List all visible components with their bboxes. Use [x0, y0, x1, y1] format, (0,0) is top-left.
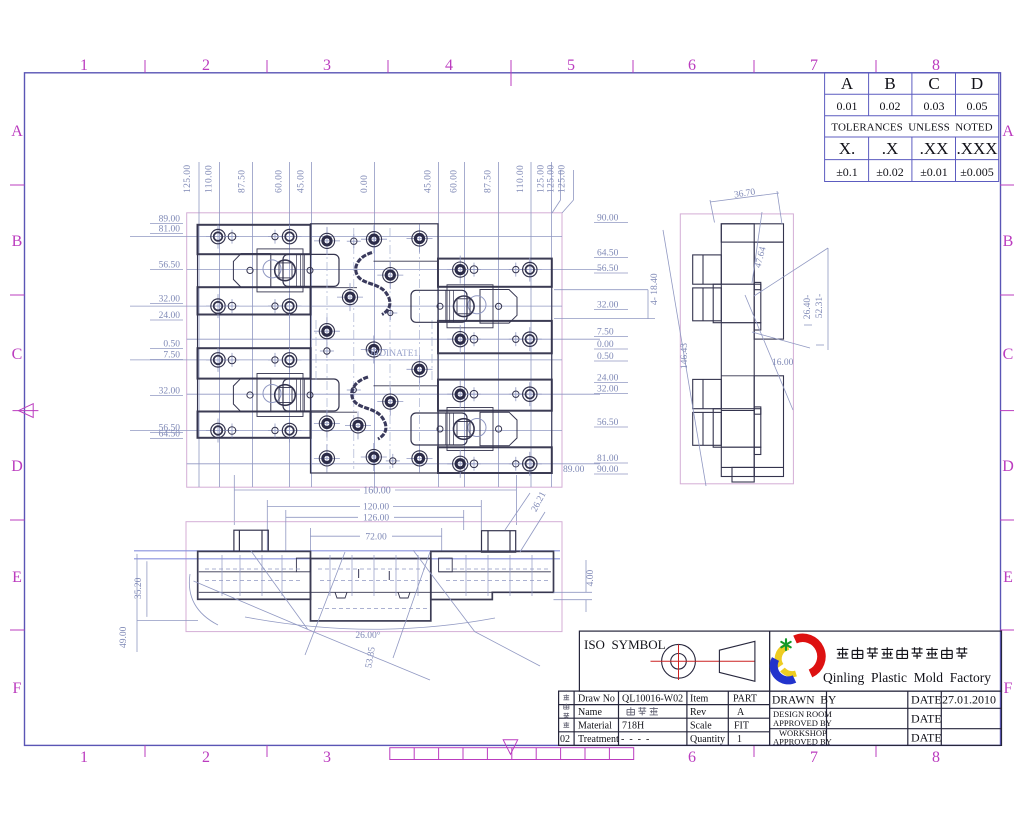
svg-text:DRAWN BY: DRAWN BY	[772, 695, 837, 707]
svg-text:X.: X.	[839, 139, 856, 158]
svg-text:90.00: 90.00	[597, 465, 619, 475]
svg-text:718H: 718H	[622, 721, 644, 732]
svg-text:4: 4	[445, 57, 453, 74]
svg-text:81.00: 81.00	[159, 225, 181, 235]
svg-text:27.01.2010: 27.01.2010	[942, 693, 996, 707]
svg-text:6: 6	[688, 749, 696, 766]
svg-text:6: 6	[688, 57, 696, 74]
svg-text:89.00: 89.00	[159, 215, 181, 225]
svg-text:7: 7	[810, 57, 818, 74]
svg-text:Draw No: Draw No	[578, 694, 615, 705]
svg-text:Name: Name	[578, 707, 602, 718]
svg-text:2: 2	[202, 57, 210, 74]
svg-text:- - - -: - - - -	[621, 734, 649, 745]
svg-text:81.00: 81.00	[597, 454, 619, 464]
svg-text:A: A	[737, 707, 745, 718]
svg-text:DATE: DATE	[911, 712, 942, 726]
svg-text:32.00: 32.00	[597, 385, 619, 395]
svg-text:72.00: 72.00	[365, 533, 387, 543]
svg-text:0.05: 0.05	[967, 99, 988, 113]
svg-text:B: B	[12, 233, 23, 250]
svg-text:FIT: FIT	[734, 721, 749, 732]
svg-text:±0.02: ±0.02	[876, 165, 904, 179]
svg-text:B: B	[1003, 233, 1014, 250]
svg-text:24.00: 24.00	[159, 311, 181, 321]
svg-text:3: 3	[323, 749, 331, 766]
svg-text:ORDINATE1: ORDINATE1	[366, 349, 418, 359]
svg-text:125.00: 125.00	[183, 164, 193, 193]
svg-text:Rev: Rev	[690, 707, 706, 718]
svg-text:49.00: 49.00	[119, 626, 129, 648]
svg-text:8: 8	[932, 749, 940, 766]
svg-text:1: 1	[737, 734, 742, 745]
svg-text:125.00: 125.00	[547, 164, 557, 193]
svg-text:45.00: 45.00	[297, 170, 307, 193]
svg-text:110.00: 110.00	[205, 165, 215, 193]
svg-text:A: A	[11, 123, 23, 140]
svg-text:±0.1: ±0.1	[836, 165, 858, 179]
svg-text:4.00: 4.00	[586, 569, 596, 586]
svg-text:87.50: 87.50	[484, 170, 494, 193]
svg-text:90.00: 90.00	[597, 214, 619, 224]
svg-text:64.50: 64.50	[597, 249, 619, 259]
svg-text:0.00: 0.00	[360, 175, 370, 193]
svg-text:7.50: 7.50	[163, 351, 180, 361]
svg-text:52.31-: 52.31-	[815, 294, 825, 319]
svg-text:35.20: 35.20	[134, 577, 144, 599]
svg-text:±0.01: ±0.01	[920, 165, 948, 179]
svg-text:F: F	[1004, 680, 1013, 697]
svg-text:ISO SYMBOL: ISO SYMBOL	[584, 637, 666, 652]
svg-text:110.00: 110.00	[516, 165, 526, 193]
svg-text:26.40-: 26.40-	[803, 295, 813, 320]
svg-text:16.00: 16.00	[772, 358, 794, 368]
svg-text:5: 5	[567, 57, 575, 74]
svg-text:Treatment: Treatment	[578, 734, 619, 745]
svg-text:32.00: 32.00	[159, 387, 181, 397]
svg-text:45.00: 45.00	[424, 170, 434, 193]
svg-text:87.50: 87.50	[238, 170, 248, 193]
svg-text:125.00: 125.00	[537, 164, 547, 193]
svg-text:±0.005: ±0.005	[960, 165, 994, 179]
svg-text:7: 7	[810, 749, 818, 766]
svg-text:C: C	[1003, 346, 1014, 363]
svg-text:56.50: 56.50	[597, 418, 619, 428]
svg-text:02: 02	[560, 734, 570, 745]
svg-text:2: 2	[202, 749, 210, 766]
svg-text:7.50: 7.50	[597, 328, 614, 338]
svg-text:89.00: 89.00	[563, 465, 585, 475]
svg-text:Qinling Plastic Mold Factor: Qinling Plastic Mold Factory	[823, 670, 991, 685]
svg-text:64.50: 64.50	[159, 430, 181, 440]
svg-text:0.02: 0.02	[880, 99, 901, 113]
svg-text:D: D	[11, 458, 23, 475]
svg-text:Scale: Scale	[690, 721, 712, 732]
svg-text:60.00: 60.00	[450, 170, 460, 193]
svg-text:.XXX: .XXX	[956, 139, 997, 158]
svg-text:125.00: 125.00	[558, 164, 568, 193]
svg-text:TOLERANCES UNLESS NOTED: TOLERANCES UNLESS NOTED	[831, 122, 992, 134]
svg-text:Material: Material	[578, 721, 612, 732]
svg-text:0.50: 0.50	[163, 340, 180, 350]
svg-text:160.00: 160.00	[363, 486, 391, 497]
svg-text:DATE: DATE	[911, 693, 942, 707]
svg-text:A: A	[841, 74, 854, 93]
svg-text:PART: PART	[733, 694, 757, 705]
svg-text:.X: .X	[882, 139, 899, 158]
svg-text:0.03: 0.03	[924, 99, 945, 113]
svg-text:F: F	[13, 680, 22, 697]
svg-text:Quantity: Quantity	[690, 734, 725, 745]
svg-text:32.00: 32.00	[159, 295, 181, 305]
svg-text:0.00: 0.00	[597, 340, 614, 350]
svg-text:DATE: DATE	[911, 731, 942, 745]
svg-text:D: D	[1002, 458, 1014, 475]
svg-text:146.43: 146.43	[680, 343, 690, 369]
svg-text:E: E	[1003, 569, 1013, 586]
svg-text:56.50: 56.50	[159, 261, 181, 271]
svg-text:QL10016-W02: QL10016-W02	[622, 694, 683, 705]
svg-text:APPROVED BY: APPROVED BY	[773, 718, 832, 728]
svg-text:8: 8	[932, 57, 940, 74]
svg-text:Item: Item	[690, 694, 709, 705]
svg-text:0.01: 0.01	[837, 99, 858, 113]
svg-text:E: E	[12, 569, 22, 586]
svg-text:3: 3	[323, 57, 331, 74]
svg-text:1: 1	[80, 749, 88, 766]
svg-text:126.00: 126.00	[363, 514, 389, 524]
svg-text:60.00: 60.00	[275, 170, 285, 193]
svg-text:26.00°: 26.00°	[355, 630, 380, 641]
svg-text:32.00: 32.00	[597, 301, 619, 311]
svg-text:C: C	[12, 346, 23, 363]
svg-text:.XX: .XX	[920, 139, 949, 158]
svg-text:4- 18.40: 4- 18.40	[650, 273, 660, 305]
svg-text:C: C	[928, 74, 939, 93]
svg-text:D: D	[971, 74, 983, 93]
svg-text:56.50: 56.50	[597, 264, 619, 274]
svg-text:B: B	[884, 74, 895, 93]
svg-text:120.00: 120.00	[363, 503, 389, 513]
svg-text:0.50: 0.50	[597, 352, 614, 362]
svg-text:APPROVED BY: APPROVED BY	[773, 737, 832, 747]
svg-text:A: A	[1002, 123, 1014, 140]
svg-text:24.00: 24.00	[597, 374, 619, 384]
svg-text:1: 1	[80, 57, 88, 74]
